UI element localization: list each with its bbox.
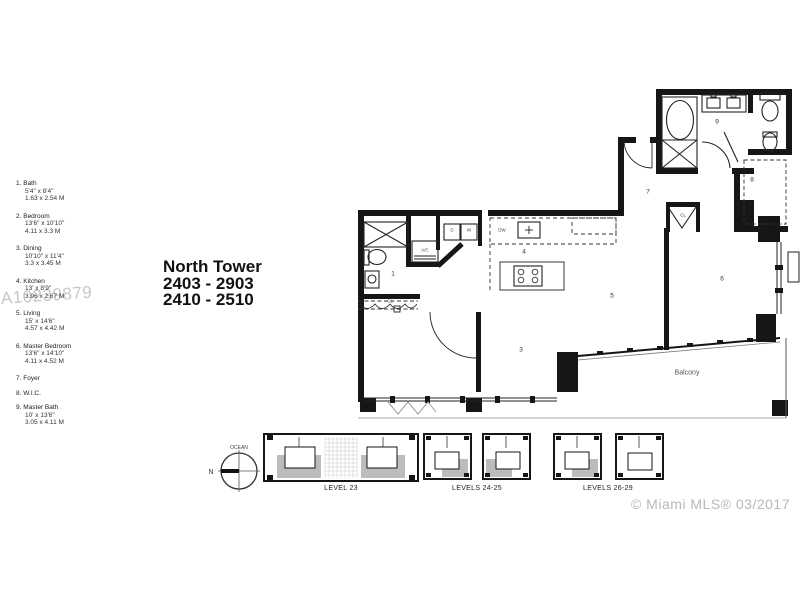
floor-plan-drawing bbox=[350, 60, 800, 435]
keyplan-26-29-b bbox=[615, 433, 664, 485]
room-label-master-bedroom: 6 bbox=[720, 276, 724, 283]
room-label-kitchen: 4 bbox=[522, 249, 526, 256]
room-label-dining: 3 bbox=[519, 347, 523, 354]
north-label: N bbox=[208, 469, 213, 476]
room-label-bath: 1 bbox=[391, 271, 395, 278]
laundry-angled-wall bbox=[438, 244, 462, 266]
keyplan-drawing bbox=[263, 433, 419, 482]
room-label-foyer: 7 bbox=[646, 189, 650, 196]
keyplan-drawing bbox=[482, 433, 531, 480]
keyplan-24-25-b bbox=[482, 433, 531, 485]
bath-fixtures bbox=[364, 222, 477, 288]
label-washer: W bbox=[467, 228, 471, 233]
keyplan-26-29-a bbox=[553, 433, 602, 485]
legend-item: 8. W.I.C. bbox=[16, 390, 136, 398]
room-label-master-bath: 9 bbox=[715, 119, 719, 126]
plan-title: North Tower 2403 - 2903 2410 - 2510 bbox=[163, 259, 262, 309]
level-23-label: LEVEL 23 bbox=[324, 485, 358, 492]
mls-copyright: © Miami MLS® 03/2017 bbox=[631, 496, 790, 512]
floor-plan: 1 3 4 5 6 7 8 9 A/C D W DW CL CL Balcony bbox=[350, 60, 800, 435]
levels-26-29-label: LEVELS 26-29 bbox=[583, 485, 633, 492]
label-closet-master: CL bbox=[680, 213, 686, 218]
exterior-lines bbox=[358, 242, 799, 418]
keyplan-drawing bbox=[615, 433, 664, 480]
label-dryer: D bbox=[450, 228, 453, 233]
keyplan-24-25-a bbox=[423, 433, 472, 485]
levels-24-25-label: LEVELS 24-25 bbox=[452, 485, 502, 492]
legend-item: 5. Living 15' x 14'6" 4.57 x 4.42 M bbox=[16, 310, 136, 333]
north-pointer bbox=[221, 469, 239, 473]
label-balcony: Balcony bbox=[675, 370, 700, 377]
legend-item: 6. Master Bedroom 13'6" x 14'10" 4.11 x … bbox=[16, 343, 136, 366]
room-legend: 1. Bath 5'4" x 8'4" 1.63 x 2.54 M 2. Bed… bbox=[16, 180, 136, 437]
label-dishwasher: DW bbox=[498, 228, 506, 233]
label-closet-bedroom: CL bbox=[387, 299, 393, 304]
legend-item: 3. Dining 10'10" x 11'4" 3.3 x 3.45 M bbox=[16, 245, 136, 268]
unit-range-2: 2410 - 2510 bbox=[163, 292, 262, 309]
legend-item: 4. Kitchen 13' x 8'9" 3.96 x 2.67 M bbox=[16, 278, 136, 301]
floorplan-page: A10239879 1. Bath 5'4" x 8'4" 1.63 x 2.5… bbox=[0, 0, 800, 600]
master-bath-fixtures bbox=[662, 93, 780, 168]
legend-item: 2. Bedroom 13'6" x 10'10" 4.11 x 3.3 M bbox=[16, 213, 136, 236]
ocean-label: OCEAN bbox=[230, 445, 248, 451]
legend-item: 1. Bath 5'4" x 8'4" 1.63 x 2.54 M bbox=[16, 180, 136, 203]
keyplan-level-23 bbox=[263, 433, 419, 487]
kitchen-fixtures bbox=[490, 218, 616, 290]
legend-item: 9. Master Bath 10' x 13'6" 3.05 x 4.11 M bbox=[16, 404, 136, 427]
keyplan-drawing bbox=[553, 433, 602, 480]
keyplan-drawing bbox=[423, 433, 472, 480]
label-ac: A/C bbox=[421, 248, 429, 253]
room-label-living: 5 bbox=[610, 293, 614, 300]
room-label-wic: 8 bbox=[750, 177, 754, 184]
legend-item: 7. Foyer bbox=[16, 375, 136, 383]
